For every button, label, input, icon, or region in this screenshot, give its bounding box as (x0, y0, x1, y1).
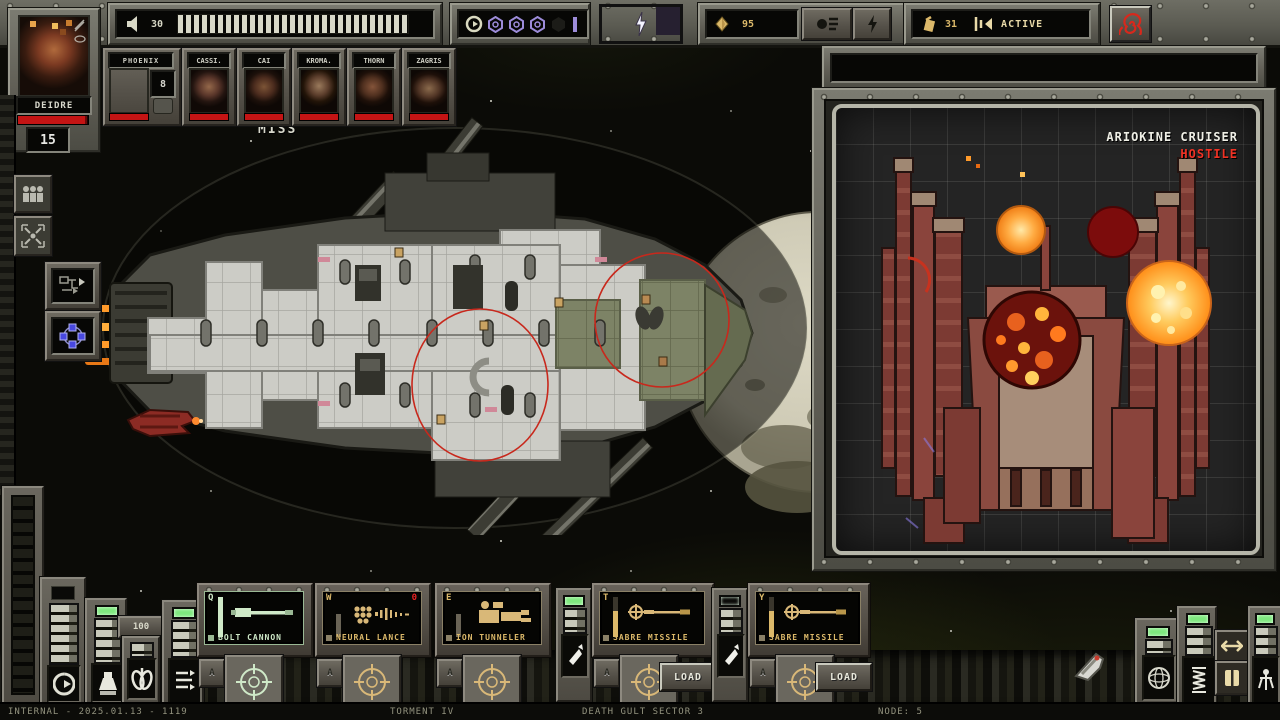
warp-spiral-button[interactable] (1110, 6, 1151, 42)
missile-magazine-y (712, 588, 748, 702)
crew-roster-icon (815, 15, 839, 33)
crew-name: THORN (363, 57, 384, 65)
weapon-key: W (326, 593, 331, 603)
hex-empty-icon (550, 16, 567, 33)
crew-badge-value: 8 (160, 79, 166, 90)
autofire-button[interactable]: A (437, 659, 463, 687)
bolt-icon (866, 15, 878, 33)
weapon-charge-gauge (613, 597, 618, 637)
weapon-module-neural-lance: W 0 NEURAL LANCE A (315, 583, 431, 695)
crew-card-phoenix[interactable]: PHOENIX 8 (103, 48, 181, 126)
crew-card[interactable]: THORN (347, 48, 401, 126)
sector-label: DEATH GULT SECTOR 3 (582, 707, 704, 717)
scrap-panel: 95 (698, 3, 906, 45)
crew-health-bar (189, 113, 229, 121)
weapon-module-bolt-cannon: Q BOLT CANNON A (197, 583, 313, 695)
status-mini-icons (73, 19, 87, 45)
captain-name: DEIDRE (35, 101, 74, 111)
network-button[interactable] (45, 311, 101, 361)
load-button[interactable]: LOAD (816, 663, 872, 691)
hull-value-badge: 15 (26, 127, 70, 153)
weapon-charge-gauge (218, 597, 223, 637)
captain-name-plate: DEIDRE (16, 96, 92, 115)
load-button[interactable]: LOAD (660, 663, 716, 691)
crew-health-bar (244, 113, 284, 121)
weapon-screen[interactable]: Q BOLT CANNON (204, 591, 304, 645)
autofire-button[interactable]: A (317, 659, 343, 687)
weapon-key: Y (759, 593, 764, 603)
disperse-button[interactable] (14, 216, 52, 256)
crew-card[interactable]: CAI (237, 48, 291, 126)
audio-value: 30 (151, 19, 163, 30)
lightning-icon (633, 12, 649, 36)
crew-weapon-chip (153, 98, 173, 114)
weapon-name: SABRE MISSILE (613, 633, 689, 642)
node-label: NODE: 5 (878, 707, 923, 717)
enemy-name: ARIOKINE CRUISER (1106, 130, 1238, 144)
alert-status-label: ACTIVE (1001, 19, 1043, 30)
crew-portrait[interactable] (189, 68, 229, 114)
enemy-ship[interactable] (836, 108, 1256, 551)
captain-portrait[interactable] (18, 15, 90, 97)
captain-panel: DEIDRE 15 (8, 8, 100, 152)
crew-health-bar (409, 113, 449, 121)
autofire-label: A (447, 668, 452, 678)
weapon-key: Q (208, 593, 213, 603)
modifier-panel (450, 3, 590, 45)
enemy-status: HOSTILE (1180, 147, 1238, 161)
crew-portrait[interactable] (109, 68, 149, 114)
crew-health-bar (299, 113, 339, 121)
engine-system-icon (97, 670, 119, 696)
power-button[interactable] (853, 8, 891, 40)
enemy-header-display (830, 53, 1258, 83)
scrap-value: 95 (742, 19, 754, 30)
weapon-sprite (473, 598, 535, 628)
weapon-name: SABRE MISSILE (769, 633, 845, 642)
crosshair-icon (234, 662, 274, 702)
crew-name: PHOENIX (123, 57, 160, 65)
crew-roster-button[interactable] (802, 8, 852, 40)
system-shields[interactable] (40, 577, 86, 707)
weapon-sprite (231, 602, 297, 622)
player-ship-view[interactable] (55, 115, 835, 535)
crew-card[interactable]: KROMA. (292, 48, 346, 126)
teleporter-icon (1256, 667, 1276, 693)
hex-charge-icon (529, 16, 546, 33)
door-icon (1223, 668, 1241, 688)
spiral-icon (1119, 13, 1143, 35)
missile-stock-icon (566, 643, 584, 669)
orb-dark-red (1088, 207, 1138, 257)
difficulty-label: TORMENT IV (390, 707, 454, 717)
shield-orb-icon (465, 15, 483, 33)
crew-card[interactable]: CASSI. (182, 48, 236, 126)
weapon-sprite (626, 602, 698, 622)
upper-superstructure (385, 173, 555, 231)
disperse-arrows-icon (21, 224, 45, 248)
weapon-screen[interactable]: W 0 NEURAL LANCE (322, 591, 422, 645)
weapon-charge-gauge (769, 597, 774, 637)
weapon-key: E (446, 593, 451, 603)
reactor-gauge (2, 486, 44, 706)
weapon-module-sabre-missile-y: Y SABRE MISSILE A LOAD (748, 583, 870, 695)
enemy-header-bar (822, 46, 1266, 90)
sensor-sphere-icon (1146, 665, 1172, 691)
crew-health-bar (109, 113, 149, 121)
load-label: LOAD (674, 672, 702, 683)
drive-icon (973, 15, 993, 33)
crew-name: KROMA. (306, 57, 331, 65)
oxygen-system-icon (131, 666, 153, 692)
autofire-button[interactable]: A (199, 659, 225, 687)
weapon-screen[interactable]: T SABRE MISSILE (599, 591, 705, 645)
diamond-icon (714, 16, 730, 32)
autofire-button[interactable]: A (750, 659, 776, 687)
status-bar: INTERNAL - 2025.01.13 - 1119 TORMENT IV … (0, 702, 1280, 720)
system-value-label: 100 (133, 622, 149, 632)
crew-health-bar (354, 113, 394, 121)
lava-core (984, 292, 1080, 388)
door-toggle-button[interactable] (1215, 661, 1249, 695)
target-button[interactable] (343, 655, 401, 709)
upper-module (427, 153, 489, 181)
crosshair-icon (352, 662, 392, 702)
shield-system-icon (53, 672, 75, 696)
enemy-viewport-frame: ARIOKINE CRUISER HOSTILE (832, 104, 1260, 555)
crew-name: CASSI. (196, 57, 221, 65)
circuit-arrow-icon (58, 274, 88, 298)
fuel-icon (921, 16, 937, 32)
target-button[interactable] (225, 655, 283, 709)
hex-charge-icon (487, 16, 504, 33)
autofire-button[interactable]: A (594, 659, 620, 687)
drone-sprite (1070, 646, 1110, 686)
weapon-key: T (603, 593, 608, 603)
crew-card[interactable]: ZAGRIS (402, 48, 456, 126)
autofire-label: A (209, 668, 214, 678)
weapon-screen[interactable]: Y SABRE MISSILE (755, 591, 861, 645)
fuel-value: 31 (945, 19, 957, 30)
crew-portrait[interactable] (299, 68, 339, 114)
crew-badge: 8 (150, 70, 176, 98)
build-label: INTERNAL - 2025.01.13 - 1119 (8, 707, 188, 717)
system-teleporter[interactable] (1248, 606, 1280, 707)
schematic-button[interactable] (45, 262, 101, 310)
weapon-sprite (782, 602, 854, 622)
weapons-system-icon (173, 666, 197, 696)
crew-group-button[interactable] (14, 175, 52, 213)
weapon-name: ION TUNNELER (456, 633, 526, 642)
crew-portrait[interactable] (354, 68, 394, 114)
hull-value: 15 (40, 133, 56, 148)
missile-magazine-t (556, 588, 592, 702)
battery-indicator[interactable] (599, 4, 683, 44)
weapon-sprite (349, 600, 415, 626)
target-button[interactable] (463, 655, 521, 709)
weapon-screen[interactable]: E ION TUNNELER (442, 591, 542, 645)
autofire-label: A (604, 668, 609, 678)
audio-power-panel: 30 (108, 3, 442, 45)
crew-name: ZAGRIS (416, 57, 441, 65)
game-screen: MISS 30 95 (0, 0, 1280, 720)
weapon-name: NEURAL LANCE (336, 633, 406, 642)
double-arrow-icon (1221, 640, 1243, 652)
nav-status-panel: 31 ACTIVE (904, 3, 1100, 45)
speaker-icon (125, 16, 143, 32)
weapon-name: BOLT CANNON (218, 633, 282, 642)
charge-tick (573, 17, 577, 32)
captain-health-bar (17, 115, 89, 125)
system-sensors[interactable] (1135, 618, 1179, 707)
transfer-button[interactable] (1215, 630, 1249, 662)
hex-charge-icon (508, 16, 525, 33)
system-shield-coil[interactable] (1177, 606, 1217, 707)
sun-small (997, 206, 1045, 254)
crew-group-icon (21, 185, 45, 203)
weapon-module-ion-tunneler: E ION TUNNELER A (435, 583, 551, 695)
crew-name: CAI (258, 57, 271, 65)
crosshair-icon (472, 662, 512, 702)
autofire-label: A (327, 668, 332, 678)
left-edge-machinery (0, 95, 16, 495)
power-cell-bar (177, 14, 409, 34)
rooms[interactable] (148, 230, 705, 460)
enemy-panel: ARIOKINE CRUISER HOSTILE (812, 88, 1276, 571)
autofire-label: A (760, 668, 765, 678)
load-label: LOAD (830, 672, 858, 683)
sun-large (1127, 261, 1211, 345)
node-network-icon (58, 323, 88, 349)
crew-portrait[interactable] (244, 68, 284, 114)
coil-icon (1188, 665, 1210, 695)
crew-portrait[interactable] (409, 68, 449, 114)
missile-stock-icon (722, 643, 740, 669)
system-oxygen-group[interactable]: 100 (118, 616, 160, 704)
weapon-module-sabre-missile-t: T SABRE MISSILE A LOAD (592, 583, 714, 695)
